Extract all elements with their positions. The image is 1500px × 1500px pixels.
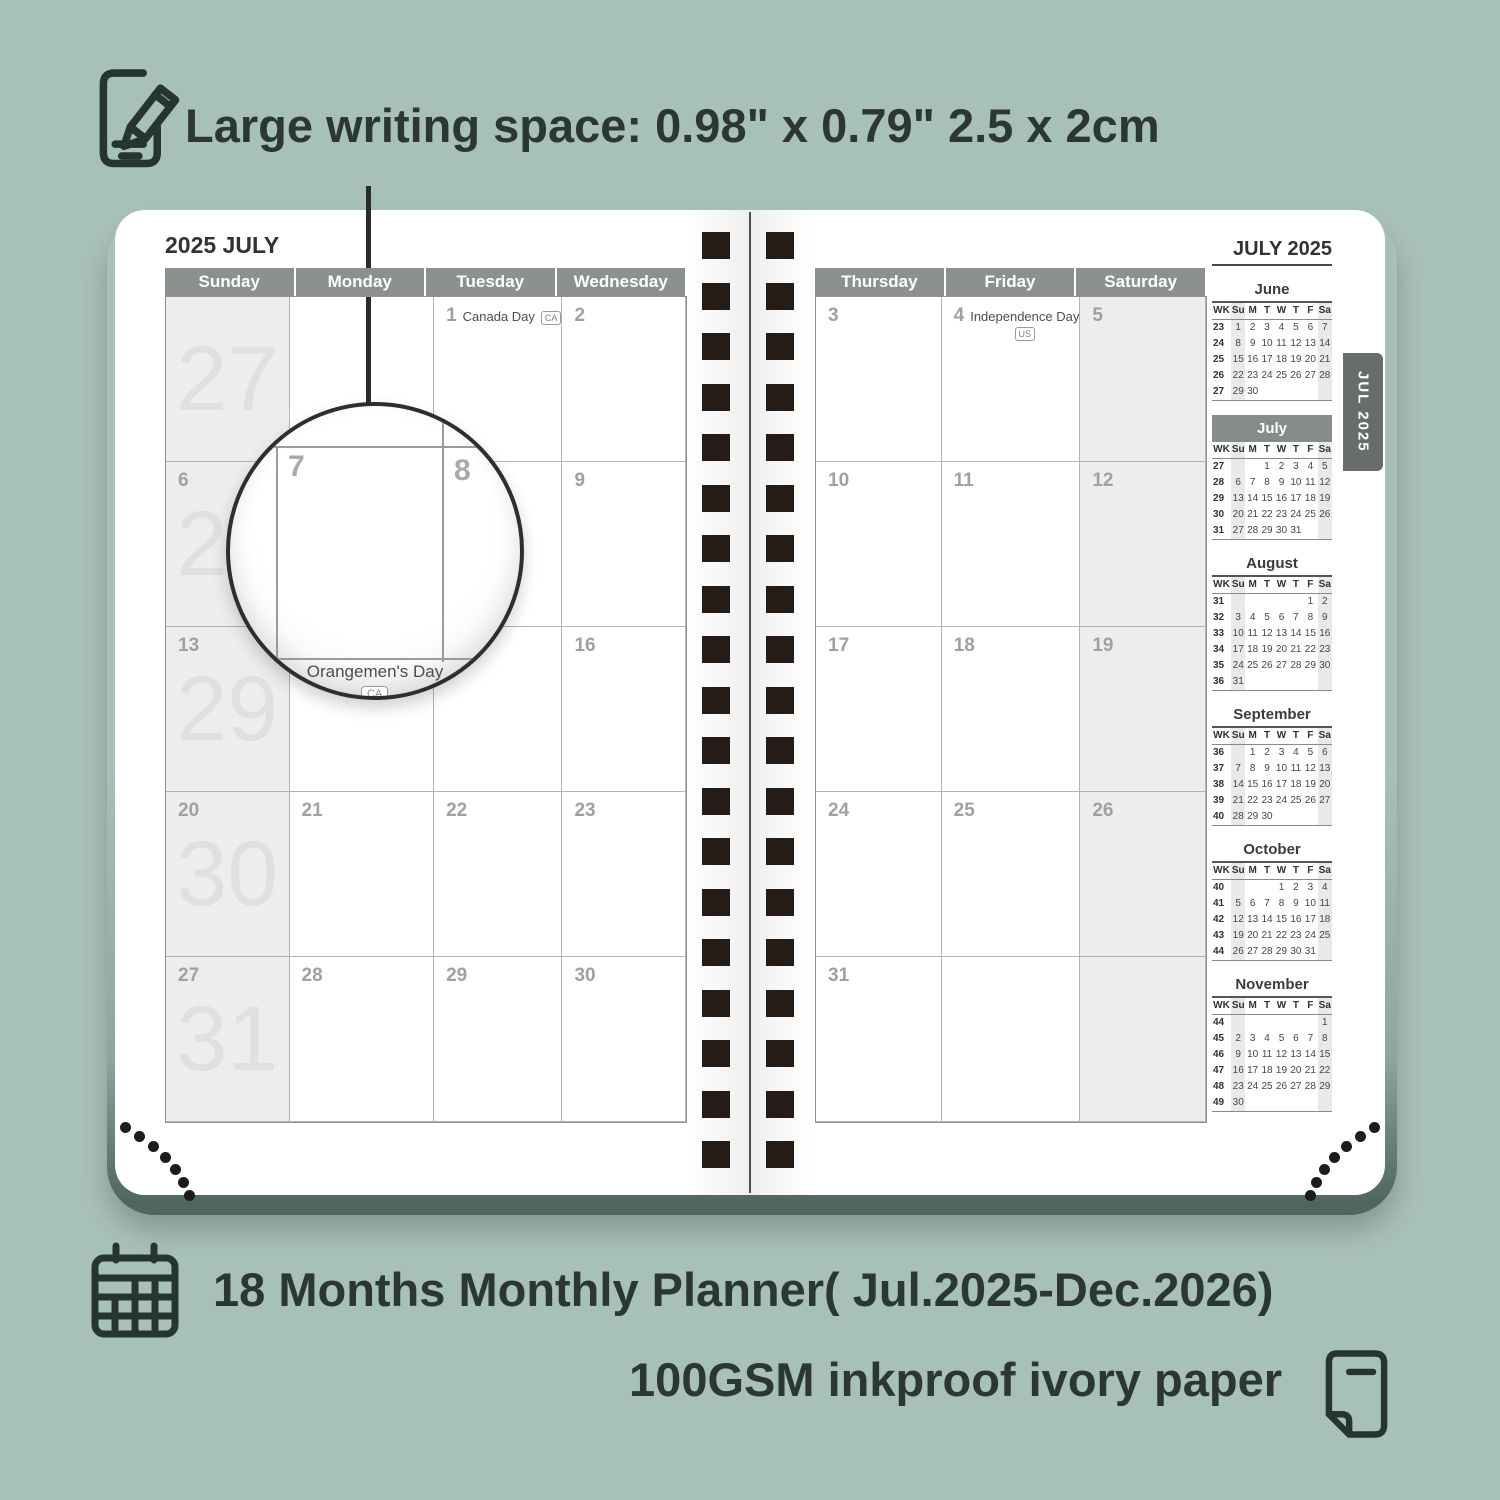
mini-day: 29 xyxy=(1245,809,1259,825)
mini-week-number: 27 xyxy=(1212,384,1231,400)
date-number: 29 xyxy=(446,965,467,987)
magnified-gridline xyxy=(442,412,444,662)
binding-hole xyxy=(702,737,730,764)
date-number: 16 xyxy=(574,635,595,657)
binding-hole xyxy=(702,990,730,1017)
mini-col-header: Su xyxy=(1231,442,1245,459)
mini-day: 6 xyxy=(1231,475,1245,491)
mini-day: 18 xyxy=(1274,352,1288,368)
mini-day: 13 xyxy=(1303,336,1317,352)
cell-content: 2 xyxy=(574,305,685,327)
mini-week-number: 31 xyxy=(1212,594,1231,610)
binding-hole xyxy=(766,333,794,360)
mini-col-header: Sa xyxy=(1318,863,1332,880)
mini-col-header: WK xyxy=(1212,728,1231,745)
mini-week-number: 27 xyxy=(1212,459,1231,475)
mini-day xyxy=(1303,1015,1317,1031)
mini-day: 14 xyxy=(1245,491,1259,507)
mini-col-header: M xyxy=(1245,303,1259,320)
mini-day: 14 xyxy=(1289,626,1303,642)
mini-day: 27 xyxy=(1318,793,1332,809)
right-weekday-header: ThursdayFridaySaturday xyxy=(815,268,1205,296)
mini-col-header: M xyxy=(1245,728,1259,745)
binding-hole xyxy=(766,636,794,663)
mini-col-header: Su xyxy=(1231,728,1245,745)
cell-content: 28 xyxy=(302,965,434,987)
mini-day: 21 xyxy=(1231,793,1245,809)
spiral-binding-left xyxy=(702,232,730,1168)
mini-day: 24 xyxy=(1245,1079,1259,1095)
mini-day: 6 xyxy=(1245,896,1259,912)
mini-day: 17 xyxy=(1260,352,1274,368)
mini-day: 5 xyxy=(1303,745,1317,761)
calendar-cell xyxy=(942,957,1081,1122)
mini-day: 28 xyxy=(1260,944,1274,960)
mini-month-title: November xyxy=(1212,975,1332,998)
mini-day: 16 xyxy=(1260,777,1274,793)
title-rule xyxy=(1212,264,1332,266)
mini-day xyxy=(1274,674,1288,690)
mini-day: 26 xyxy=(1231,944,1245,960)
mini-day: 31 xyxy=(1231,674,1245,690)
mini-day: 30 xyxy=(1274,523,1288,539)
binding-hole xyxy=(766,838,794,865)
mini-day xyxy=(1274,594,1288,610)
mini-week-number: 26 xyxy=(1212,368,1231,384)
mini-day: 19 xyxy=(1303,777,1317,793)
calendar-cell: 22 xyxy=(434,792,562,957)
mini-day: 7 xyxy=(1245,475,1259,491)
binding-hole xyxy=(702,889,730,916)
magnified-date-8: 8 xyxy=(454,454,471,488)
date-number: 5 xyxy=(1092,305,1103,327)
mini-col-header: WK xyxy=(1212,998,1231,1015)
cell-content: 4Independence DayUS xyxy=(954,305,1080,341)
mini-day: 15 xyxy=(1260,491,1274,507)
date-number: 27 xyxy=(178,965,199,987)
day-header-saturday: Saturday xyxy=(1076,268,1205,296)
corner-dot xyxy=(1329,1152,1340,1163)
mini-col-header: M xyxy=(1245,577,1259,594)
right-page-title: JULY 2025 xyxy=(1212,238,1332,261)
mini-day: 7 xyxy=(1260,896,1274,912)
cell-content: 19 xyxy=(1092,635,1205,657)
mini-day: 23 xyxy=(1231,1079,1245,1095)
mini-day: 9 xyxy=(1318,610,1332,626)
mini-week-number: 35 xyxy=(1212,658,1231,674)
mini-week-number: 43 xyxy=(1212,928,1231,944)
cell-content: 12 xyxy=(1092,470,1205,492)
mini-month-august: AugustWKSuMTWTFSa31123234567893310111213… xyxy=(1212,554,1332,691)
mini-day: 11 xyxy=(1303,475,1317,491)
mini-col-header: T xyxy=(1260,442,1274,459)
mini-col-header: T xyxy=(1289,303,1303,320)
binding-hole xyxy=(766,232,794,259)
mini-day: 27 xyxy=(1274,658,1288,674)
mini-day xyxy=(1231,880,1245,896)
day-header-tuesday: Tuesday xyxy=(426,268,555,296)
mini-col-header: W xyxy=(1274,998,1288,1015)
magnified-gridline xyxy=(276,446,278,660)
mini-day: 26 xyxy=(1260,658,1274,674)
mini-day xyxy=(1318,809,1332,825)
calendar-cell: 5 xyxy=(1080,297,1206,462)
mini-day: 2 xyxy=(1318,594,1332,610)
mini-col-header: M xyxy=(1245,998,1259,1015)
mini-month-table: WKSuMTWTFSa23123456724891011121314251516… xyxy=(1212,303,1332,401)
mini-col-header: T xyxy=(1260,728,1274,745)
mini-month-november: NovemberWKSuMTWTFSa441452345678469101112… xyxy=(1212,975,1332,1112)
mini-day: 27 xyxy=(1245,944,1259,960)
cell-content: 24 xyxy=(828,800,941,822)
mini-week-number: 46 xyxy=(1212,1047,1231,1063)
mini-day: 2 xyxy=(1260,745,1274,761)
mini-day xyxy=(1260,880,1274,896)
mini-day xyxy=(1303,674,1317,690)
binding-hole xyxy=(766,1091,794,1118)
mini-day: 3 xyxy=(1303,880,1317,896)
mini-month-title: June xyxy=(1212,280,1332,303)
mini-day: 8 xyxy=(1318,1031,1332,1047)
mini-day xyxy=(1303,384,1317,400)
mini-day: 2 xyxy=(1274,459,1288,475)
mini-day: 24 xyxy=(1231,658,1245,674)
date-number: 13 xyxy=(178,635,199,657)
holiday-label: Independence Day xyxy=(970,305,1079,324)
mini-day: 10 xyxy=(1245,1047,1259,1063)
mini-day xyxy=(1245,1015,1259,1031)
date-number: 30 xyxy=(574,965,595,987)
mini-day xyxy=(1260,594,1274,610)
mini-col-header: F xyxy=(1303,863,1317,880)
binding-hole xyxy=(766,1141,794,1168)
cell-content: 5 xyxy=(1092,305,1205,327)
mini-col-header: Sa xyxy=(1318,577,1332,594)
mini-day: 26 xyxy=(1303,793,1317,809)
mini-day: 2 xyxy=(1231,1031,1245,1047)
cell-content: 20 xyxy=(178,800,289,822)
mini-week-number: 39 xyxy=(1212,793,1231,809)
paper-sheet-icon xyxy=(1305,1344,1397,1444)
mini-month-title: September xyxy=(1212,705,1332,728)
mini-month-table: WKSuMTWTFSa44145234567846910111213141547… xyxy=(1212,998,1332,1112)
binding-hole xyxy=(766,535,794,562)
mini-day: 4 xyxy=(1318,880,1332,896)
binding-hole xyxy=(766,687,794,714)
mini-day: 12 xyxy=(1289,336,1303,352)
mini-week-number: 49 xyxy=(1212,1095,1231,1111)
mini-day: 16 xyxy=(1318,626,1332,642)
mini-day: 13 xyxy=(1231,491,1245,507)
mini-week-number: 33 xyxy=(1212,626,1231,642)
mini-day: 10 xyxy=(1303,896,1317,912)
mini-day: 30 xyxy=(1231,1095,1245,1111)
date-number: 10 xyxy=(828,470,849,492)
mini-col-header: WK xyxy=(1212,577,1231,594)
mini-day: 7 xyxy=(1318,320,1332,336)
mini-day: 20 xyxy=(1318,777,1332,793)
mini-day: 22 xyxy=(1260,507,1274,523)
mini-day: 18 xyxy=(1245,642,1259,658)
mini-day: 28 xyxy=(1303,1079,1317,1095)
mini-day xyxy=(1289,594,1303,610)
mini-day: 31 xyxy=(1303,944,1317,960)
mini-col-header: Sa xyxy=(1318,998,1332,1015)
mini-day: 29 xyxy=(1231,384,1245,400)
mini-day: 23 xyxy=(1260,793,1274,809)
cell-content: 31 xyxy=(828,965,941,987)
binding-hole xyxy=(702,1091,730,1118)
date-number: 4 xyxy=(954,305,965,327)
binding-hole xyxy=(702,838,730,865)
mini-week-number: 24 xyxy=(1212,336,1231,352)
mini-day: 20 xyxy=(1245,928,1259,944)
cell-content: 1Canada DayCA xyxy=(446,305,561,327)
mini-month-table: WKSuMTWTFSa27123452867891011122913141516… xyxy=(1212,442,1332,540)
mini-day: 22 xyxy=(1245,793,1259,809)
mini-day: 30 xyxy=(1289,944,1303,960)
mini-day: 15 xyxy=(1274,912,1288,928)
mini-day: 10 xyxy=(1289,475,1303,491)
mini-col-header: W xyxy=(1274,863,1288,880)
mini-day: 12 xyxy=(1318,475,1332,491)
mini-day: 28 xyxy=(1231,809,1245,825)
mini-day: 19 xyxy=(1318,491,1332,507)
mini-day: 14 xyxy=(1231,777,1245,793)
calendar-cell: 10 xyxy=(816,462,942,627)
mini-day: 1 xyxy=(1260,459,1274,475)
calendar-cell: 25 xyxy=(942,792,1081,957)
mini-day xyxy=(1289,1015,1303,1031)
mini-week-number: 42 xyxy=(1212,912,1231,928)
mini-week-number: 44 xyxy=(1212,1015,1231,1031)
calendar-cell: 27 xyxy=(166,297,290,462)
mini-day: 11 xyxy=(1245,626,1259,642)
cell-content: 3 xyxy=(828,305,941,327)
mini-week-number: 30 xyxy=(1212,507,1231,523)
mini-col-header: F xyxy=(1303,728,1317,745)
left-weekday-header: SundayMondayTuesdayWednesday xyxy=(165,268,685,296)
mini-day: 15 xyxy=(1318,1047,1332,1063)
mini-col-header: Su xyxy=(1231,303,1245,320)
mini-week-number: 45 xyxy=(1212,1031,1231,1047)
mini-day xyxy=(1303,809,1317,825)
mini-day: 5 xyxy=(1318,459,1332,475)
mini-day: 2 xyxy=(1289,880,1303,896)
binding-hole xyxy=(766,434,794,461)
mini-day: 5 xyxy=(1231,896,1245,912)
calendar-cell: 12 xyxy=(1080,462,1206,627)
binding-hole xyxy=(702,283,730,310)
mini-day xyxy=(1318,1095,1332,1111)
binding-hole xyxy=(702,485,730,512)
mini-month-table: WKSuMTWTFSa31123234567893310111213141516… xyxy=(1212,577,1332,691)
corner-dot xyxy=(1369,1122,1380,1133)
mini-day xyxy=(1303,1095,1317,1111)
mini-day: 22 xyxy=(1274,928,1288,944)
binding-hole xyxy=(702,434,730,461)
mini-day: 25 xyxy=(1260,1079,1274,1095)
calendar-cell: 9 xyxy=(562,462,686,627)
mini-day xyxy=(1274,1095,1288,1111)
mini-day: 18 xyxy=(1318,912,1332,928)
mini-week-number: 40 xyxy=(1212,809,1231,825)
binding-hole xyxy=(702,687,730,714)
mini-day: 15 xyxy=(1303,626,1317,642)
calendar-cell: 24 xyxy=(816,792,942,957)
bottom-note-paper: 100GSM inkproof ivory paper xyxy=(629,1352,1282,1407)
mini-col-header: T xyxy=(1289,728,1303,745)
binding-hole xyxy=(702,1141,730,1168)
corner-dot xyxy=(1319,1164,1330,1175)
magnified-date-7: 7 xyxy=(288,450,305,484)
mini-month-september: SeptemberWKSuMTWTFSa36123456377891011121… xyxy=(1212,705,1332,826)
mini-day: 13 xyxy=(1318,761,1332,777)
mini-week-number: 32 xyxy=(1212,610,1231,626)
week-number-ghost: 27 xyxy=(166,297,289,461)
mini-day xyxy=(1318,944,1332,960)
mini-day: 25 xyxy=(1274,368,1288,384)
mini-day: 1 xyxy=(1318,1015,1332,1031)
mini-day xyxy=(1289,384,1303,400)
date-number: 28 xyxy=(302,965,323,987)
calendar-cell: 2 xyxy=(562,297,686,462)
mini-day: 24 xyxy=(1303,928,1317,944)
mini-day xyxy=(1260,1015,1274,1031)
mini-col-header: T xyxy=(1260,303,1274,320)
binding-hole xyxy=(766,1040,794,1067)
binding-hole xyxy=(702,939,730,966)
date-number: 26 xyxy=(1092,800,1113,822)
mini-week-number: 48 xyxy=(1212,1079,1231,1095)
mini-day: 9 xyxy=(1289,896,1303,912)
mini-month-july: JulyWKSuMTWTFSa2712345286789101112291314… xyxy=(1212,415,1332,540)
mini-day xyxy=(1274,384,1288,400)
mini-day: 19 xyxy=(1274,1063,1288,1079)
mini-day: 23 xyxy=(1289,928,1303,944)
mini-day: 11 xyxy=(1318,896,1332,912)
mini-day: 4 xyxy=(1289,745,1303,761)
mini-day: 14 xyxy=(1318,336,1332,352)
mini-day: 13 xyxy=(1245,912,1259,928)
calendar-cell: 3020 xyxy=(166,792,290,957)
cell-content: 18 xyxy=(954,635,1080,657)
mini-day: 28 xyxy=(1289,658,1303,674)
binding-hole xyxy=(702,1040,730,1067)
mini-day xyxy=(1231,594,1245,610)
mini-day: 16 xyxy=(1289,912,1303,928)
binding-hole xyxy=(702,232,730,259)
mini-day xyxy=(1245,594,1259,610)
mini-day xyxy=(1303,523,1317,539)
mini-week-number: 40 xyxy=(1212,880,1231,896)
mini-month-title: July xyxy=(1212,415,1332,442)
mini-col-header: WK xyxy=(1212,303,1231,320)
calendar-cell: 18 xyxy=(942,627,1081,792)
mini-month-table: WKSuMTWTFSa36123456377891011121338141516… xyxy=(1212,728,1332,826)
mini-day xyxy=(1260,1095,1274,1111)
cell-content: 29 xyxy=(446,965,561,987)
binding-hole xyxy=(766,990,794,1017)
mini-day: 19 xyxy=(1289,352,1303,368)
calendar-cell: 11 xyxy=(942,462,1081,627)
mini-day: 18 xyxy=(1260,1063,1274,1079)
mini-month-october: OctoberWKSuMTWTFSa4012344156789101142121… xyxy=(1212,840,1332,961)
corner-dot xyxy=(160,1152,171,1163)
mini-day: 6 xyxy=(1274,610,1288,626)
mini-col-header: F xyxy=(1303,998,1317,1015)
cell-content: 25 xyxy=(954,800,1080,822)
binding-hole xyxy=(766,283,794,310)
mini-day: 25 xyxy=(1289,793,1303,809)
mini-day xyxy=(1260,674,1274,690)
mini-day: 2 xyxy=(1245,320,1259,336)
mini-day: 31 xyxy=(1289,523,1303,539)
mini-week-number: 47 xyxy=(1212,1063,1231,1079)
magnified-holiday-badge: CA xyxy=(361,686,388,700)
mini-day: 24 xyxy=(1289,507,1303,523)
date-number: 18 xyxy=(954,635,975,657)
mini-day: 21 xyxy=(1245,507,1259,523)
mini-day: 8 xyxy=(1274,896,1288,912)
mini-day xyxy=(1318,523,1332,539)
magnified-holiday-label: Orangemen's Day xyxy=(230,662,520,682)
mini-day: 25 xyxy=(1318,928,1332,944)
mini-day: 20 xyxy=(1303,352,1317,368)
mini-week-number: 41 xyxy=(1212,896,1231,912)
planner-product-image: Large writing space: 0.98" x 0.79" 2.5 x… xyxy=(0,0,1500,1500)
mini-day xyxy=(1289,674,1303,690)
mini-day: 7 xyxy=(1289,610,1303,626)
holiday-country-badge: CA xyxy=(541,311,562,325)
mini-day: 19 xyxy=(1260,642,1274,658)
mini-day: 26 xyxy=(1318,507,1332,523)
mini-day xyxy=(1289,809,1303,825)
date-number: 21 xyxy=(302,800,323,822)
mini-day: 19 xyxy=(1231,928,1245,944)
mini-day: 3 xyxy=(1274,745,1288,761)
mini-col-header: WK xyxy=(1212,442,1231,459)
date-number: 23 xyxy=(574,800,595,822)
day-header-monday: Monday xyxy=(296,268,425,296)
corner-dot xyxy=(1355,1131,1366,1142)
mini-day: 27 xyxy=(1303,368,1317,384)
mini-day: 23 xyxy=(1274,507,1288,523)
mini-day: 11 xyxy=(1289,761,1303,777)
date-number: 11 xyxy=(954,470,974,492)
mini-day: 18 xyxy=(1303,491,1317,507)
month-tab-label: JUL 2025 xyxy=(1355,371,1372,453)
spiral-binding-right xyxy=(766,232,794,1168)
date-number: 3 xyxy=(828,305,839,327)
mini-day: 8 xyxy=(1260,475,1274,491)
mini-day: 26 xyxy=(1274,1079,1288,1095)
cell-content: 10 xyxy=(828,470,941,492)
mini-col-header: T xyxy=(1260,998,1274,1015)
mini-col-header: T xyxy=(1289,442,1303,459)
mini-day: 14 xyxy=(1260,912,1274,928)
corner-dot xyxy=(1311,1177,1322,1188)
left-page-title: 2025 JULY xyxy=(165,232,279,259)
corner-dot xyxy=(134,1131,145,1142)
mini-day: 26 xyxy=(1289,368,1303,384)
mini-day: 30 xyxy=(1260,809,1274,825)
corner-dot xyxy=(1305,1190,1316,1201)
binding-hole xyxy=(702,586,730,613)
calendar-cell: 17 xyxy=(816,627,942,792)
binding-hole xyxy=(702,384,730,411)
mini-day: 24 xyxy=(1274,793,1288,809)
